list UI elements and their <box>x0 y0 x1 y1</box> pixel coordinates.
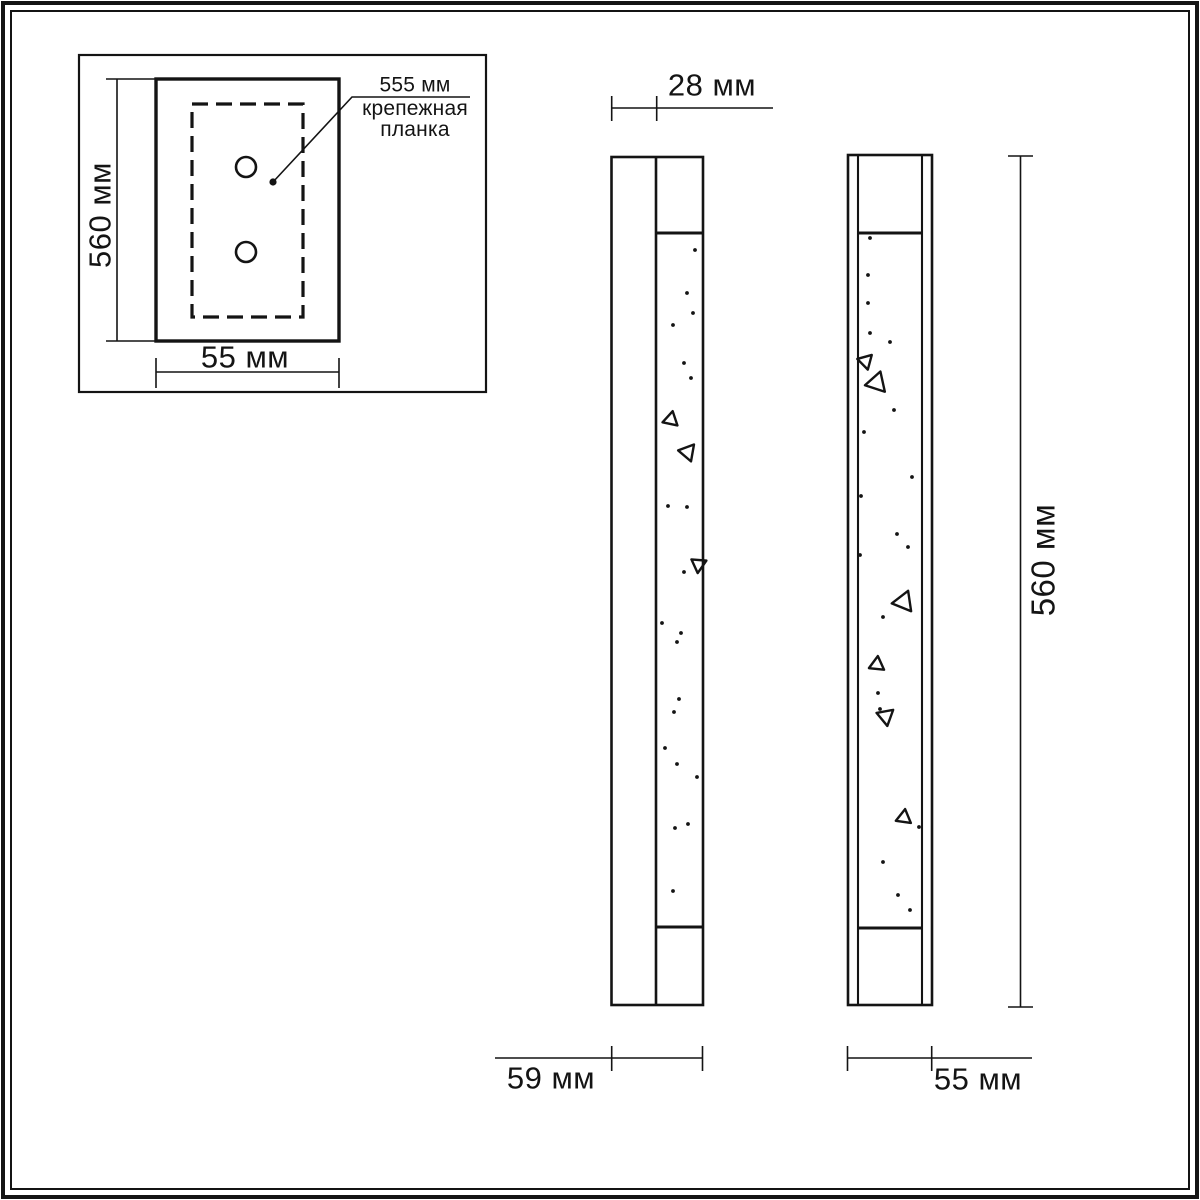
plate-name-label: крепежная планка <box>362 98 468 140</box>
sparkle-dot <box>682 361 686 365</box>
sparkle-dot <box>695 775 699 779</box>
sparkle-dot <box>892 408 896 412</box>
sparkle-dot <box>910 475 914 479</box>
sparkle-dot <box>906 545 910 549</box>
inner-frame-border <box>11 11 1189 1189</box>
sparkle-dot <box>881 860 885 864</box>
front-view-cap-lines <box>858 233 922 928</box>
sparkle-dot <box>866 273 870 277</box>
depth-top-label: 28 мм <box>668 70 756 101</box>
outer-frame-border <box>3 3 1197 1197</box>
drawing-linework <box>0 0 1200 1200</box>
sparkle-dot <box>866 301 870 305</box>
front-height-label: 560 мм <box>1027 504 1060 617</box>
inset-width-label: 55 мм <box>201 342 289 373</box>
plate-length-label: 555 мм <box>380 75 451 96</box>
sparkle-dot <box>663 746 667 750</box>
sparkle-dot <box>908 908 912 912</box>
sparkle-dot <box>896 893 900 897</box>
sparkle-dot <box>868 331 872 335</box>
sparkle-triangle <box>677 442 694 461</box>
technical-drawing-canvas: 560 мм 55 мм 555 мм крепежная планка 28 … <box>0 0 1200 1200</box>
sparkle-dot <box>686 822 690 826</box>
front-view-outline <box>848 155 932 1005</box>
sparkle-dot <box>693 248 697 252</box>
sparkle-triangle <box>869 655 885 669</box>
sparkle-dot <box>868 236 872 240</box>
screw-hole-top <box>236 157 256 177</box>
sparkle-dot <box>675 640 679 644</box>
sparkle-triangle <box>865 368 890 391</box>
sparkle-dot <box>685 505 689 509</box>
screw-hole-bottom <box>236 242 256 262</box>
sparkle-dot <box>888 340 892 344</box>
side-view-diffuser-texture <box>660 248 706 893</box>
sparkle-triangle <box>874 705 894 726</box>
mounting-bar-dashed-outline <box>192 104 303 317</box>
inset-height-label: 560 мм <box>85 162 116 268</box>
sparkle-triangle <box>663 410 681 426</box>
sparkle-dot <box>689 376 693 380</box>
sparkle-dot <box>858 553 862 557</box>
sparkle-dot <box>675 762 679 766</box>
front-width-label: 55 мм <box>934 1064 1022 1095</box>
sparkle-dot <box>691 311 695 315</box>
backplate-outline <box>156 79 339 341</box>
sparkle-dot <box>660 621 664 625</box>
depth-total-label: 59 мм <box>507 1063 595 1094</box>
front-view-side-edges <box>858 155 922 1005</box>
sparkle-dot <box>859 494 863 498</box>
sparkle-dot <box>682 570 686 574</box>
sparkle-dot <box>876 691 880 695</box>
sparkle-dot <box>673 826 677 830</box>
sparkle-dot <box>895 532 899 536</box>
sparkle-dot <box>679 631 683 635</box>
sparkle-dot <box>917 825 921 829</box>
sparkle-dot <box>672 710 676 714</box>
sparkle-dot <box>881 615 885 619</box>
sparkle-triangle <box>892 587 918 611</box>
sparkle-dot <box>671 323 675 327</box>
plate-name-line2: планка <box>362 119 468 140</box>
front-view-diffuser-texture <box>855 236 921 912</box>
plate-name-line1: крепежная <box>362 98 468 119</box>
sparkle-dot <box>878 707 882 711</box>
sparkle-dot <box>671 889 675 893</box>
sparkle-dot <box>677 697 681 701</box>
sparkle-dot <box>685 291 689 295</box>
side-view-cap-lines <box>656 233 703 927</box>
sparkle-dot <box>862 430 866 434</box>
sparkle-triangle <box>896 808 913 823</box>
sparkle-dot <box>666 504 670 508</box>
